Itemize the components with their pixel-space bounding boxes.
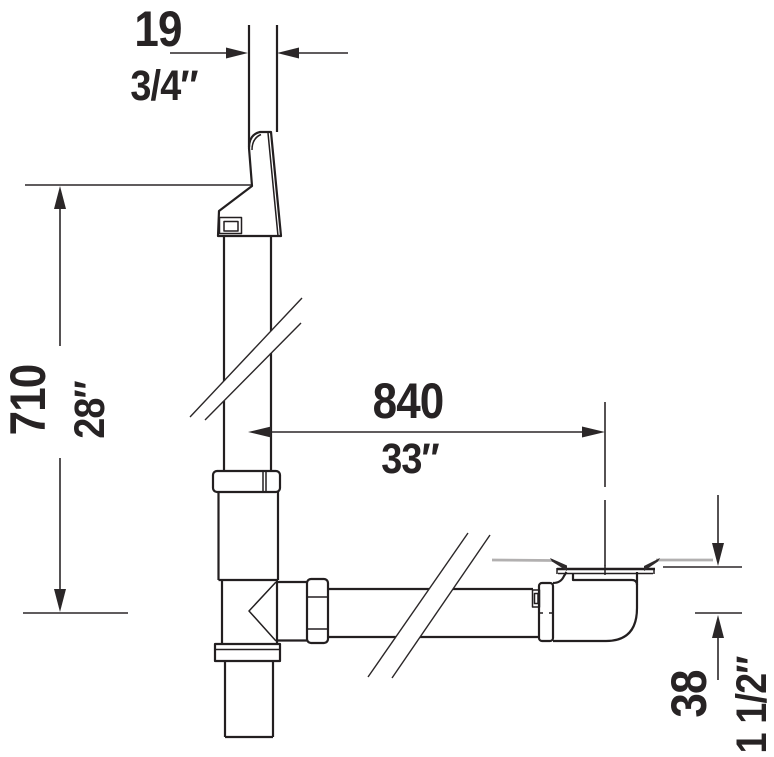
- dim-38-mm-label: 38: [660, 670, 716, 717]
- dim-19-inch-label: 3/4″: [130, 61, 198, 110]
- tailpipe: [225, 661, 273, 737]
- dim-840-mm-label: 840: [373, 372, 444, 428]
- tub-floor-left: [492, 558, 567, 571]
- drain-elbow: [553, 572, 637, 641]
- dim-38-inch-label: 1 1/2″: [727, 656, 774, 754]
- dim-outlet-depth: 38 1 1/2″: [660, 495, 774, 754]
- tee-outlet-nut: [307, 579, 328, 643]
- dim-840-inch-label: 33″: [381, 434, 439, 483]
- dim-19-arrow-right-icon: [226, 48, 248, 59]
- break-symbol-vertical: [190, 298, 302, 420]
- dim-710-arrow-down-icon: [54, 589, 66, 612]
- technical-drawing-page: 19 3/4″ 710 28″ 840 33″: [0, 0, 774, 757]
- dim-710-mm-label: 710: [0, 365, 56, 436]
- dim-710-inch-label: 28″: [65, 381, 114, 439]
- overflow-conduit: [249, 25, 277, 147]
- tee-branch-chevron: [249, 582, 276, 641]
- collar-flange: [215, 644, 280, 661]
- dim-conduit-width: 19 3/4″: [130, 0, 348, 109]
- overflow-fitting: [218, 132, 281, 236]
- dim-710-arrow-up-icon: [54, 186, 66, 209]
- waste-pipe-horizontal: [328, 589, 539, 637]
- trap-body: [219, 492, 279, 580]
- dim-19-mm-label: 19: [134, 0, 181, 56]
- dim-38-arrow-up-icon: [712, 615, 724, 638]
- compression-nut: [213, 471, 280, 492]
- waste-overflow-diagram: 19 3/4″ 710 28″ 840 33″: [0, 0, 774, 757]
- cable-block-inner: [224, 222, 238, 232]
- drain-nut-tab-inner: [535, 594, 539, 604]
- break-symbol-horizontal: [368, 533, 490, 678]
- dim-840-arrow-left-icon: [248, 427, 271, 438]
- dim-840-arrow-right-icon: [582, 427, 605, 438]
- drain-nut: [533, 583, 554, 641]
- drain-flange: [557, 566, 655, 576]
- tee-body: [222, 580, 307, 643]
- dim-38-arrow-down-icon: [712, 543, 724, 566]
- dim-overflow-height: 710 28″: [0, 185, 251, 613]
- dim-horizontal-run: 840 33″: [248, 372, 605, 566]
- dim-19-arrow-left-icon: [277, 48, 299, 59]
